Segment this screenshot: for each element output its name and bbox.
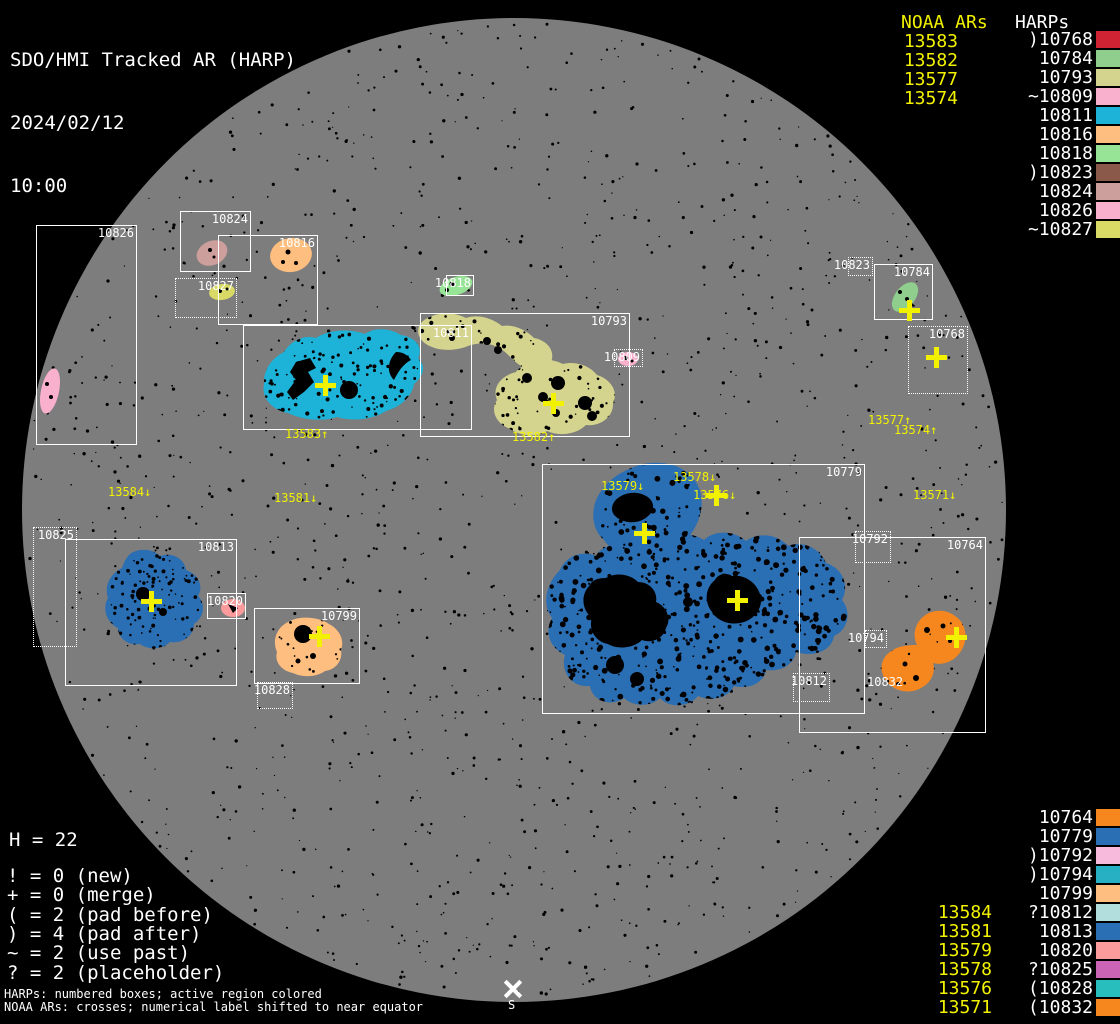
harp-box-label-10799: 10799 [321,610,357,622]
harp-box-label-10824: 10824 [212,213,248,225]
harp-box-label-10784: 10784 [894,266,930,278]
harp-box-label-10813: 10813 [198,541,234,553]
noaa-shifted-label: 13581↓ [274,492,317,505]
harp-color-swatch-10824 [1096,183,1120,200]
harp-box-10828: 10828 [257,682,293,709]
harp-box-label-10794: 10794 [848,632,884,644]
harp-box-10820: 10820 [207,593,246,619]
harp-box-10799: 10799 [254,608,360,684]
footnote-line: NOAA ARs: crosses; numerical label shift… [4,1001,423,1014]
harp-list-item-10793: 10793 [893,67,1093,88]
time-label: 10:00 [10,176,296,197]
harp-color-swatch-10825 [1096,961,1120,978]
harp-box-label-10779: 10779 [826,466,862,478]
noaa-shifted-label: 13583↑ [285,428,328,441]
harp-color-swatch-10828 [1096,980,1120,997]
noaa-shifted-label: 13584↓ [108,486,151,499]
harp-list-item-10764: 10764 [893,807,1093,828]
noaa-shifted-label: 13578↓ [673,471,716,484]
harp-list-item-10825: ?10825 [893,959,1093,980]
harp-box-10818: 10818 [446,275,474,296]
harp-list-item-10794: )10794 [893,864,1093,885]
harp-color-swatch-10820 [1096,942,1120,959]
noaa-cross [634,523,655,544]
harp-box-label-10826: 10826 [98,227,134,239]
harp-box-label-10768: 10768 [929,328,965,340]
harp-color-swatch-10832 [1096,999,1120,1016]
noaa-shifted-label: 13571↓ [913,489,956,502]
harp-box-10809: 10809 [614,349,643,367]
noaa-shifted-label: 13574↑ [894,424,937,437]
harp-color-swatch-10793 [1096,69,1120,86]
harp-color-swatch-10768 [1096,31,1120,48]
harp-box-label-10827: 10827 [198,280,234,292]
harp-box-label-10793: 10793 [591,315,627,327]
noaa-cross [946,627,967,648]
page-title: SDO/HMI Tracked AR (HARP) [10,50,296,71]
harp-box-label-10818: 10818 [435,277,471,289]
noaa-cross [727,590,748,611]
noaa-shifted-label: 13582↑ [512,431,555,444]
harp-list-item-10827: ~10827 [893,219,1093,240]
harp-color-swatch-10812 [1096,904,1120,921]
harp-tracker-view: SDO/HMI Tracked AR (HARP) 2024/02/12 10:… [0,0,1120,1024]
harp-color-swatch-10813 [1096,923,1120,940]
harp-box-10823: 10823 [848,257,873,276]
harp-list-item-10820: 10820 [893,940,1093,961]
harp-color-swatch-10792 [1096,847,1120,864]
noaa-cross [315,375,336,396]
noaa-cross [141,591,162,612]
harp-color-swatch-10823 [1096,164,1120,181]
harp-color-swatch-10818 [1096,145,1120,162]
harp-color-swatch-10827 [1096,221,1120,238]
harp-list-item-10768: )10768 [893,29,1093,50]
harp-list-item-10813: 10813 [893,921,1093,942]
harp-box-label-10816: 10816 [279,237,315,249]
harp-box-label-10820: 10820 [207,595,243,607]
harp-list-item-10792: )10792 [893,845,1093,866]
harp-color-swatch-10799 [1096,885,1120,902]
noaa-shifted-label: 13576↓ [693,489,736,502]
harp-list-item-10818: 10818 [893,143,1093,164]
harp-color-swatch-10809 [1096,88,1120,105]
harp-list-item-10823: )10823 [893,162,1093,183]
harp-color-swatch-10816 [1096,126,1120,143]
south-pole-label: S [508,998,515,1012]
harp-box-10812: 10812 [793,673,830,702]
noaa-cross [309,626,330,647]
harp-list-item-10816: 10816 [893,124,1093,145]
harp-list-item-10799: 10799 [893,883,1093,904]
harp-list-item-10779: 10779 [893,826,1093,847]
harp-color-swatch-10811 [1096,107,1120,124]
harp-box-10794: 10794 [865,630,887,648]
harp-box-label-10812: 10812 [791,675,827,687]
flag-legend-line: ? = 2 (placeholder) [7,962,224,984]
harp-box-10827: 10827 [175,278,237,318]
date-label: 2024/02/12 [10,113,296,134]
harp-list-item-10826: 10826 [893,200,1093,221]
harp-box-label-10809: 10809 [604,351,640,363]
harp-box-label-10764: 10764 [947,539,983,551]
south-pole-marker [502,978,524,1000]
noaa-shifted-label: 13579↓ [601,480,644,493]
harp-box-10793: 10793 [420,313,630,437]
harp-list-item-10812: ?10812 [893,902,1093,923]
noaa-cross [899,300,920,321]
harp-box-10826: 10826 [36,225,137,445]
harp-box-label-10823: 10823 [834,259,870,271]
harp-box-label-10828: 10828 [254,684,290,696]
title-block: SDO/HMI Tracked AR (HARP) 2024/02/12 10:… [10,8,296,239]
harp-box-label-10832: 10832 [867,676,903,688]
harp-list-item-10824: 10824 [893,181,1093,202]
harp-color-swatch-10779 [1096,828,1120,845]
harp-color-swatch-10794 [1096,866,1120,883]
harp-color-swatch-10784 [1096,50,1120,67]
harp-list-item-10809: ~10809 [893,86,1093,107]
harp-count: H = 22 [9,829,78,851]
harp-list-item-10784: 10784 [893,48,1093,69]
harp-color-swatch-10764 [1096,809,1120,826]
harp-list-item-10832: (10832 [893,997,1093,1018]
noaa-cross [926,347,947,368]
noaa-cross [543,393,564,414]
harp-list-item-10811: 10811 [893,105,1093,126]
harp-list-item-10828: (10828 [893,978,1093,999]
harp-color-swatch-10826 [1096,202,1120,219]
